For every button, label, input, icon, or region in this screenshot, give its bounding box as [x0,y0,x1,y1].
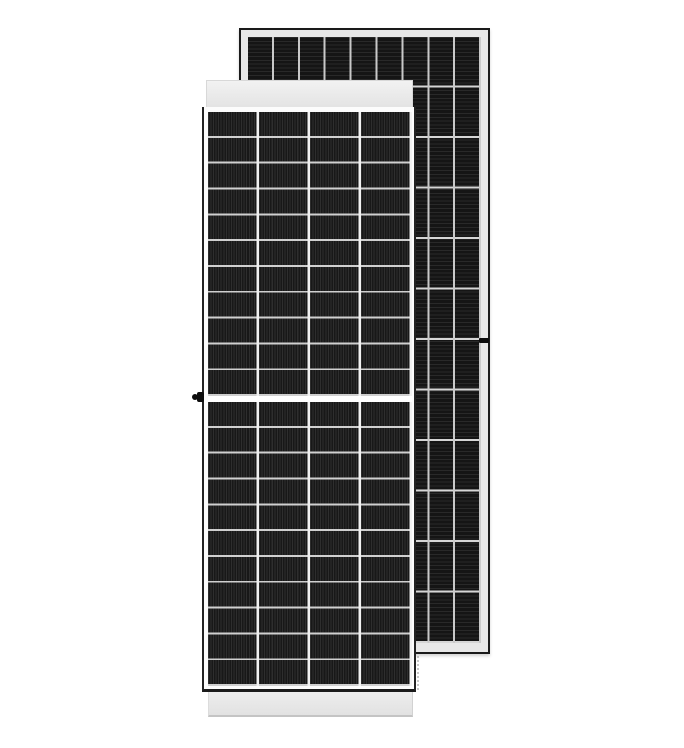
front-panel-bottom-frame-rail [208,692,413,717]
solar-panel-front-view [202,107,416,692]
shadow-artifact [417,656,422,690]
solar-panel-product-image [0,0,684,748]
front-panel-cell-grid-lower [208,402,412,686]
grounding-screw-icon [479,338,489,343]
grounding-lug-icon [197,392,204,402]
front-panel-cell-grid-upper [208,112,412,396]
